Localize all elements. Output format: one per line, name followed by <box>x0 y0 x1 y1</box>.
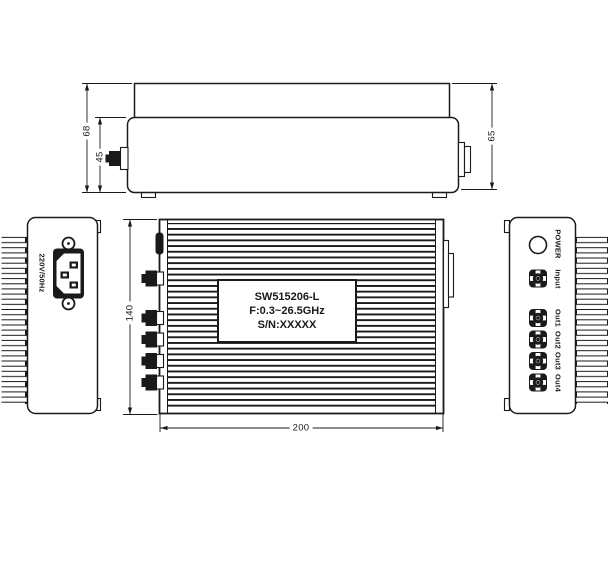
nameplate-serial: S/N:XXXXX <box>258 318 317 332</box>
inlet-protrusion <box>444 241 454 308</box>
dim-front-height: 140 <box>125 302 136 325</box>
inlet-protrusion <box>459 143 471 177</box>
out3-label: Out3 <box>553 352 562 370</box>
dim-right-height: 65 <box>487 127 498 144</box>
power-panel-view <box>2 218 101 414</box>
out4-label: Out4 <box>553 374 562 392</box>
sma-connector-side-icon <box>105 148 128 170</box>
dim-total-height: 68 <box>82 122 93 139</box>
input-label: Input <box>553 269 562 288</box>
sma-connector-out3-icon <box>530 353 547 370</box>
iec-c14-inlet-icon <box>53 249 84 299</box>
power-led-icon <box>530 237 547 254</box>
outline-drawing-canvas: 68 45 65 140 200 220V/50Hz POWER Input O… <box>0 0 610 563</box>
sma-connector-side-icon <box>142 271 164 286</box>
nameplate-frequency: F:0.3~26.5GHz <box>249 304 325 318</box>
sma-connector-input-icon <box>530 270 547 287</box>
sma-connector-side-icon <box>142 375 164 390</box>
power-led-side-icon <box>156 233 164 255</box>
power-led-label: POWER <box>553 229 562 258</box>
heatsink-fins <box>576 233 608 404</box>
product-nameplate: SW515206-L F:0.3~26.5GHz S/N:XXXXX <box>217 279 357 343</box>
chassis-body <box>128 118 459 193</box>
sma-connector-side-icon <box>142 354 164 369</box>
power-rating-label: 220V/50Hz <box>38 253 47 292</box>
sma-connector-side-icon <box>142 311 164 326</box>
out1-label: Out1 <box>553 309 562 327</box>
heatsink-fins <box>2 233 28 404</box>
lid-profile <box>135 84 450 118</box>
dim-front-width: 200 <box>290 423 313 434</box>
sma-connector-out4-icon <box>530 374 547 391</box>
dim-body-height: 45 <box>95 148 106 165</box>
nameplate-model: SW515206-L <box>255 290 320 304</box>
out2-label: Out2 <box>553 331 562 349</box>
sma-connector-out1-icon <box>530 310 547 327</box>
sma-connector-out2-icon <box>530 331 547 348</box>
side-view <box>82 84 497 198</box>
sma-connector-side-icon <box>142 332 164 347</box>
